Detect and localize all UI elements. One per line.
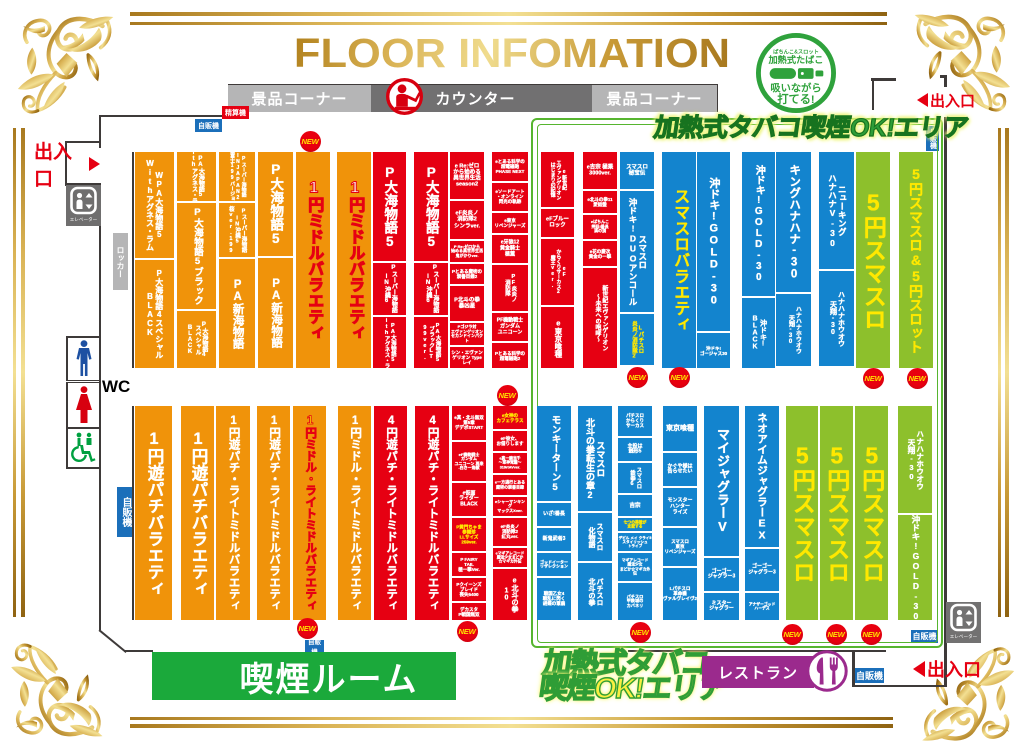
- svg-text:エレベーター: エレベーター: [950, 633, 978, 640]
- svg-text:加熱式たばこ: 加熱式たばこ: [768, 54, 824, 65]
- svg-text:吸いながら: 吸いながら: [770, 82, 821, 95]
- svg-text:打てる!: 打てる!: [777, 92, 814, 106]
- svg-text:エレベーター: エレベーター: [70, 216, 98, 223]
